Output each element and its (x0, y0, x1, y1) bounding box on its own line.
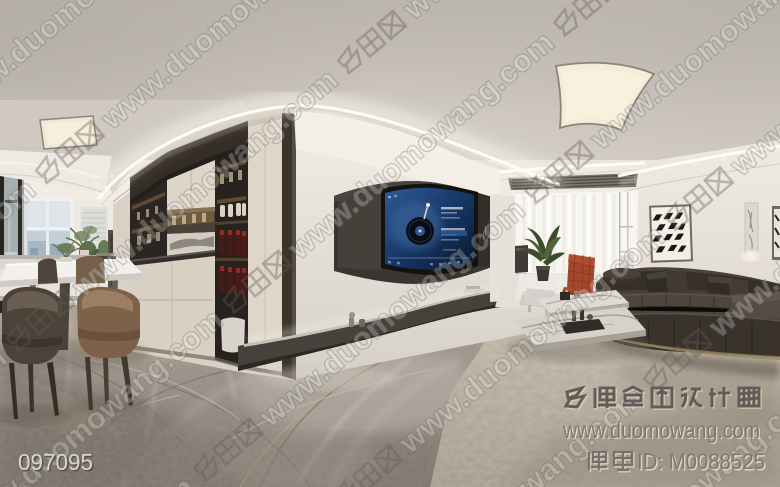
svg-text:ID: M0088525: ID: M0088525 (637, 449, 765, 474)
svg-text:097095: 097095 (18, 449, 93, 475)
svg-text:www.duomowang.com: www.duomowang.com (562, 417, 760, 443)
